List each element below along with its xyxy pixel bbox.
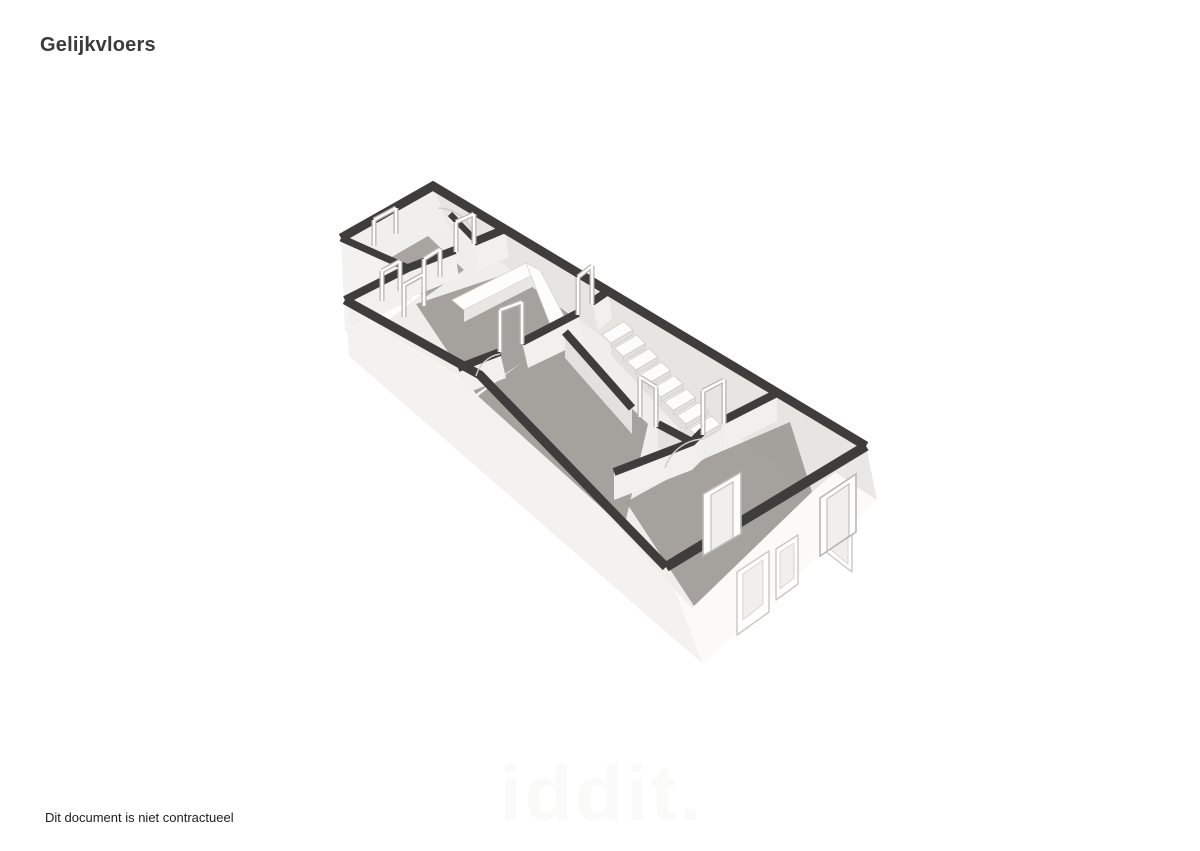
floorplan-3d-view (0, 0, 1200, 851)
floorplan-3d-svg (0, 0, 1200, 851)
disclaimer-text: Dit document is niet contractueel (45, 810, 234, 825)
